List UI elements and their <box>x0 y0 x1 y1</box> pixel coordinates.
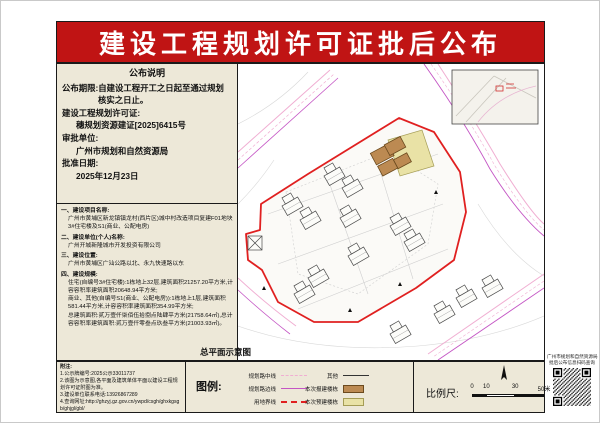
approval-date: 2025年12月23日 <box>62 170 232 183</box>
note-line: 4.查询网址:http://ghzyj.gz.gov.cn/ywpd/csgh/… <box>60 399 182 413</box>
legend: 图例: 规划路中线 规划路边线 用地界线 其他 本次报建楼栋 <box>185 361 414 413</box>
project-details: 一、建设项目名称: 广州市黄埔区新龙镇镇龙村(西片区)城中村改造项目复建F01地… <box>57 204 237 328</box>
scale-box: 比例尺: 0 10 30 50米 <box>413 361 545 413</box>
building-footprint <box>248 236 262 250</box>
scale-ticks: 0 10 30 50米 <box>472 384 544 392</box>
notice-line: 核实之日止。 <box>62 94 232 107</box>
legend-item: 本次预建楼栋 <box>282 395 369 408</box>
scale-label: 比例尺: <box>426 385 459 400</box>
scale-tick: 0 <box>470 384 473 390</box>
legend-fill-column: 其他 本次报建楼栋 本次预建楼栋 <box>282 369 369 408</box>
project-item: 一、建设项目名称: 广州市黄埔区新龙镇镇龙村(西片区)城中村改造项目复建F01地… <box>61 207 233 232</box>
project-item-body: 广州开城新隆城市开发投资有限公司 <box>61 242 233 250</box>
announcement-sheet: 建设工程规划许可证批后公布 公布说明 公布期限:自建设工程开工之日起至通过规划 … <box>0 0 600 423</box>
legend-item-label: 其他 <box>282 372 338 380</box>
qr-block: 广州市规划和自然资源局 批后公布信息扫码查询 <box>547 354 597 411</box>
notes-title: 附注: <box>60 364 182 371</box>
legend-line-other <box>343 375 369 376</box>
site-plan-map <box>238 64 544 360</box>
project-scale-residential: 住宅(自编号3#住宅楼):1栋地上32层,建筑面积21257.20平方米,计容容… <box>61 279 233 295</box>
legend-item-label: 本次预建楼栋 <box>282 398 338 406</box>
approval-authority: 广州市规划和自然资源局 <box>62 145 232 158</box>
notice-box: 公布说明 公布期限:自建设工程开工之日起至通过规划 核实之日止。 建设工程规划许… <box>57 64 237 204</box>
scale-tick: 30 <box>512 384 519 390</box>
legend-item-label: 本次报建楼栋 <box>282 385 338 393</box>
north-arrow-icon <box>498 364 510 384</box>
project-item: 二、建设单位(个人)名称: 广州开城新隆城市开发投资有限公司 <box>61 234 233 250</box>
note-line: 1.公示牌编号:2025公示33011737 <box>60 371 182 378</box>
legend-item-label: 用地界线 <box>220 398 276 406</box>
scale-bar <box>472 394 544 398</box>
project-scale-total: 总建筑面积:贰万壹仟柒佰伍拾捌点陆肆平方米(21758.64㎡),总计容容积率建… <box>61 312 233 328</box>
left-column: 公布说明 公布期限:自建设工程开工之日起至通过规划 核实之日止。 建设工程规划许… <box>56 63 238 361</box>
notice-title: 公布说明 <box>62 67 232 81</box>
project-item-label: 一、建设项目名称: <box>61 207 233 215</box>
legend-item-label: 规划路边线 <box>220 385 276 393</box>
permit-number: 穗规划资源建证[2025]6415号 <box>62 119 232 132</box>
project-item-body: 广州市黄埔区广汕公路以北、永九快速路以东 <box>61 260 233 268</box>
project-item-label: 四、建设规模: <box>61 271 233 279</box>
notice-line: 公布期限:自建设工程开工之日起至通过规划 <box>62 82 232 95</box>
notes: 附注: 1.公示牌编号:2025公示33011737 2.该图为示意图,各平面及… <box>56 361 186 413</box>
qr-caption-line2: 批后公布信息扫码查询 <box>547 360 597 366</box>
legend-title: 图例: <box>196 378 222 394</box>
page-title: 建设工程规划许可证批后公布 <box>99 24 502 61</box>
legend-swatch-approved-building <box>343 385 364 393</box>
qr-code <box>553 368 591 406</box>
project-scale-commercial: 商业、其他(自编号S1(商业、公配电房)):1栋地上1层,建筑面积581.44平… <box>61 295 233 311</box>
note-line: 2.该图为示意图,各平面及建筑单体平面以建设工程规划许可证附图为准。 <box>60 378 182 392</box>
project-item: 三、建设位置: 广州市黄埔区广汕公路以北、永九快速路以东 <box>61 252 233 268</box>
map-caption: 总平面示意图 <box>200 346 251 358</box>
legend-item: 本次报建楼栋 <box>282 382 369 395</box>
legend-item: 其他 <box>282 369 369 382</box>
site-plan-panel <box>237 63 545 361</box>
banner: 建设工程规划许可证批后公布 <box>56 21 545 63</box>
inset-location-map <box>452 70 538 124</box>
notice-line: 审批单位: <box>62 132 232 145</box>
project-item: 四、建设规模: 住宅(自编号3#住宅楼):1栋地上32层,建筑面积21257.2… <box>61 271 233 329</box>
legend-item-label: 规划路中线 <box>220 372 276 380</box>
project-item-body: 广州市黄埔区新龙镇镇龙村(西片区)城中村改造项目复建F01地块3#住宅楼及S1(… <box>61 215 233 231</box>
project-item-label: 二、建设单位(个人)名称: <box>61 234 233 242</box>
legend-swatch-planned-building <box>343 398 364 406</box>
scale-tick: 10 <box>483 384 490 390</box>
project-item-label: 三、建设位置: <box>61 252 233 260</box>
notice-line: 批准日期: <box>62 157 232 170</box>
notice-line: 建设工程规划许可证: <box>62 107 232 120</box>
